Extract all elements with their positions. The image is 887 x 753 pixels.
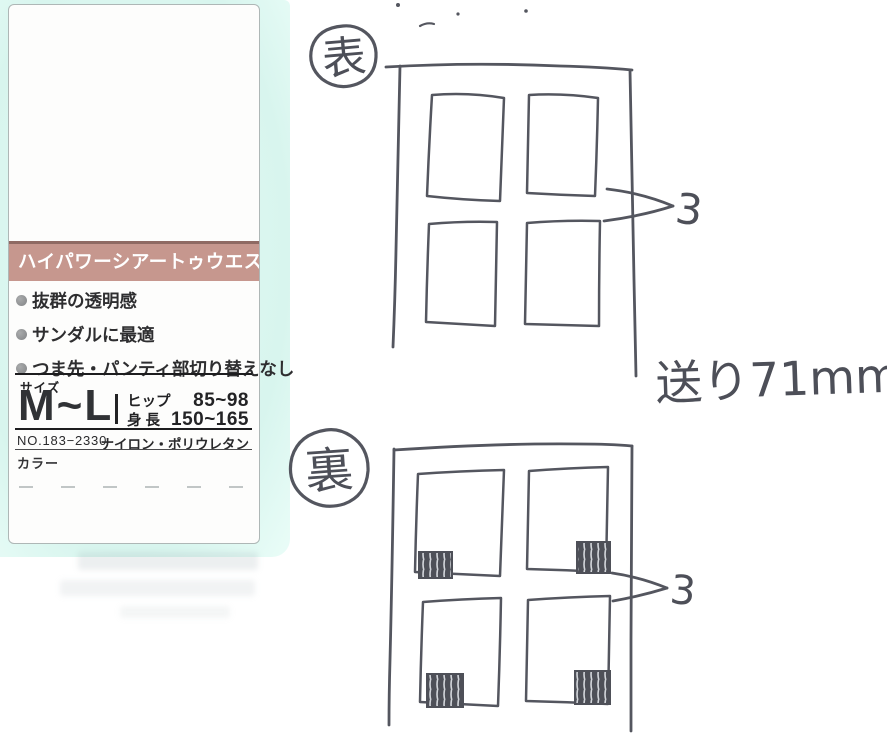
- back-badge-label: 裏: [303, 441, 355, 500]
- front-callout-arrow: [604, 206, 673, 221]
- front-badge-label: 表: [320, 31, 368, 86]
- front-callout-arrow: [607, 189, 673, 206]
- stitch-patch-top-left: [419, 552, 452, 578]
- stitch-patch-bottom-right: [575, 671, 610, 704]
- back-frame-top: [394, 444, 632, 450]
- front-pane-bottom-right: [525, 221, 600, 326]
- back-frame-left: [389, 449, 394, 725]
- front-frame-right: [630, 70, 636, 376]
- front-pane-top-right: [527, 94, 598, 196]
- hand-sketch: 表 3 送り71mm 裏: [0, 0, 887, 753]
- stitch-patches: [419, 542, 610, 707]
- front-panel-diagram: 3: [386, 64, 705, 376]
- back-badge: 裏: [290, 430, 368, 507]
- stitch-patch-top-right: [577, 542, 610, 573]
- back-callout-arrow: [613, 588, 667, 601]
- ink-specks: [396, 3, 528, 26]
- front-frame-left: [393, 66, 400, 347]
- back-frame-right: [631, 446, 632, 731]
- front-frame-top: [386, 64, 632, 70]
- front-pane-bottom-left: [426, 222, 497, 326]
- scanned-sheet: ハイパワーシアートゥウエスト 抜群の透明感 サンダルに最適 つま先・パンティ部切…: [0, 0, 887, 753]
- back-panel-diagram: 3: [389, 444, 698, 731]
- back-callout-arrow: [612, 573, 667, 588]
- back-callout-value: 3: [668, 567, 698, 615]
- stitch-patch-bottom-left: [427, 674, 463, 707]
- front-callout-value: 3: [673, 184, 706, 236]
- feed-note: 送り71mm: [654, 348, 887, 412]
- front-pane-top-left: [427, 94, 504, 201]
- front-badge: 表: [311, 26, 376, 87]
